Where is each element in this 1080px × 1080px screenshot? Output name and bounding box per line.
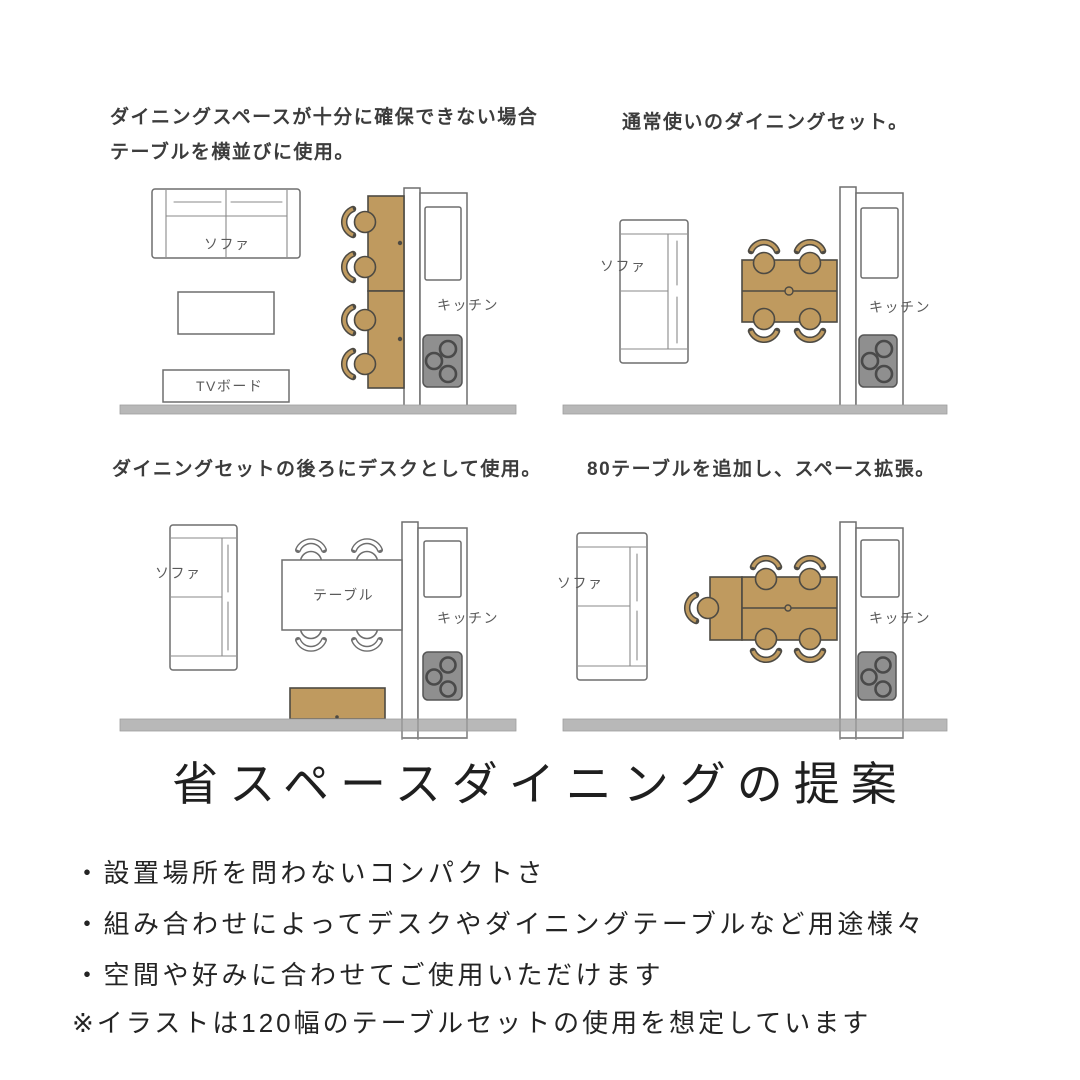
bullet-item: ・空間や好みに合わせてご使用いただけます [74,955,664,992]
bullet-item: ・組み合わせによってデスクやダイニングテーブルなど用途様々 [74,904,926,941]
footnote: ※イラストは120幅のテーブルセットの使用を想定しています [72,1003,871,1040]
chair [344,209,375,235]
kitchen-wall [404,188,420,406]
tv-board-label: TVボード [196,378,263,394]
kitchen-label: キッチン [869,610,931,626]
page-title: 省スペースダイニングの提案 [0,748,1080,814]
caption-line: ダイニングスペースが十分に確保できない場合 [110,100,538,135]
kitchen-sink [424,541,461,597]
sofa [577,533,647,680]
caption-line: テーブルを横並びに使用。 [110,135,538,170]
sofa-label: ソファ [600,258,647,274]
sofa-label: ソファ [204,236,251,252]
chair [797,309,823,340]
infographic-page: ダイニングスペースが十分に確保できない場合 テーブルを横並びに使用。 通常使いの… [0,0,1080,1080]
kitchen-wall [840,187,856,406]
chair [753,558,779,589]
floor-line [563,405,947,414]
desk [290,688,385,719]
caption-bottom-left: ダイニングセットの後ろにデスクとして使用。 [112,452,542,487]
kitchen-sink [861,208,898,278]
floor-line [120,405,516,414]
chair [797,558,823,589]
sofa-label: ソファ [557,575,604,591]
kitchen-sink [425,207,461,280]
caption-bottom-right: 80テーブルを追加し、スペース拡張。 [587,452,936,487]
floorplan-bottom-right: ソファ キッチン [550,515,960,750]
table-label: テーブル [313,587,374,603]
sofa [620,220,688,363]
floorplan-top-right: ソファ キッチン [555,180,955,420]
chair [751,309,777,340]
caption-top-right: 通常使いのダイニングセット。 [622,105,909,140]
stove [423,652,462,700]
sofa-label: ソファ [155,565,202,581]
kitchen-wall [402,522,418,738]
chair [687,595,718,621]
caption-top-left: ダイニングスペースが十分に確保できない場合 テーブルを横並びに使用。 [110,100,538,170]
chair [751,242,777,273]
stove [859,335,897,387]
kitchen-label: キッチン [437,297,499,313]
chair [753,629,779,660]
stove [423,335,462,387]
kitchen-label: キッチン [437,610,499,626]
chair [797,629,823,660]
coffee-table [178,292,274,334]
floor-line [563,719,947,731]
sofa [170,525,237,670]
chair [344,307,375,333]
stove [858,652,896,700]
kitchen-sink [861,540,899,597]
floor-line [120,719,516,731]
floorplan-bottom-left: ソファ テーブル キッチン [110,515,520,750]
bullet-item: ・設置場所を問わないコンパクトさ [74,853,546,890]
floorplan-top-left: ソファ TVボード キッチン [110,180,520,420]
kitchen-wall [840,522,856,738]
chair [344,351,375,377]
chair [797,242,823,273]
kitchen-label: キッチン [869,299,931,315]
chair [344,254,375,280]
